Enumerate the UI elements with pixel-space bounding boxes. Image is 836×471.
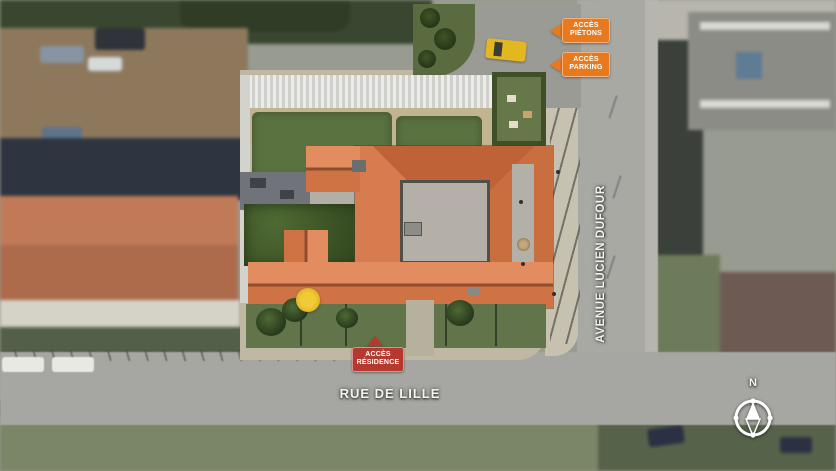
compass-rose-icon <box>727 392 779 444</box>
access-residence-sign: ACCÈS RÉSIDENCE <box>352 347 404 372</box>
compass-north-label: N <box>745 377 761 389</box>
access-pietons-sign: ACCÈS PIÉTONS <box>562 18 610 43</box>
arrow-up-icon <box>367 336 383 346</box>
street-label-avenue-lucien-dufour: AVENUE LUCIEN DUFOUR <box>595 174 607 354</box>
arrow-left-icon <box>550 24 561 38</box>
street-label-rue-de-lille: RUE DE LILLE <box>325 386 455 401</box>
access-parking-sign: ACCÈS PARKING <box>562 52 610 77</box>
arrow-left-icon <box>550 58 561 72</box>
aerial-site-plan-map: ACCÈS PIÉTONS ACCÈS PARKING ACCÈS RÉSIDE… <box>0 0 836 471</box>
labels-layer: ACCÈS PIÉTONS ACCÈS PARKING ACCÈS RÉSIDE… <box>0 0 836 471</box>
